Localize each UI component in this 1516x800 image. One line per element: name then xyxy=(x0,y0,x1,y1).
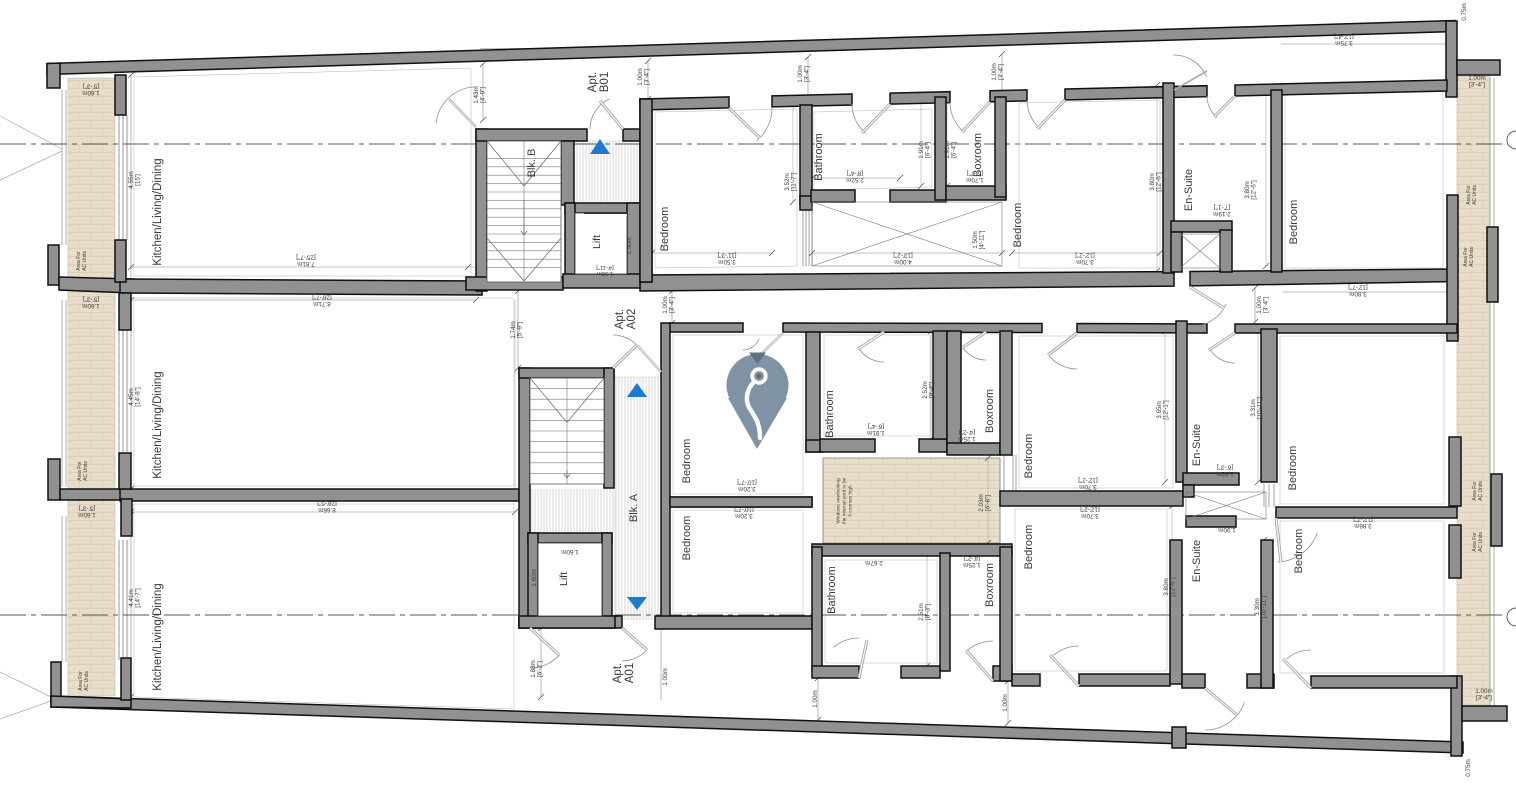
svg-text:3.30m[10'-11"]: 3.30m[10'-11"] xyxy=(1254,595,1268,618)
svg-text:2.03m[6'-8"]: 2.03m[6'-8"] xyxy=(978,494,992,512)
svg-text:3.80m[12'-6"]: 3.80m[12'-6"] xyxy=(1244,180,1258,200)
svg-text:1.70m[5'-7"]: 1.70m[5'-7"] xyxy=(966,170,984,184)
svg-text:2.19m[7'-1"]: 2.19m[7'-1"] xyxy=(1213,204,1231,218)
svg-text:En-Suite: En-Suite xyxy=(1191,424,1203,466)
svg-text:2.52m[8'-4"]: 2.52m[8'-4"] xyxy=(922,381,936,399)
svg-text:Bedroom: Bedroom xyxy=(1288,200,1300,245)
svg-text:Kitchen/Living/Dining: Kitchen/Living/Dining xyxy=(152,583,164,690)
svg-text:2.51m[8'-3"]: 2.51m[8'-3"] xyxy=(918,603,932,621)
svg-text:1.60m[5'-3"]: 1.60m[5'-3"] xyxy=(78,505,96,519)
svg-text:1.00m[3'-4"]: 1.00m[3'-4"] xyxy=(637,68,651,86)
svg-text:Boxroom: Boxroom xyxy=(984,563,996,607)
svg-text:1.60m[5'-3"]: 1.60m[5'-3"] xyxy=(82,83,100,97)
svg-text:En-Suite: En-Suite xyxy=(1191,540,1203,582)
svg-text:1.74m[5'-9"]: 1.74m[5'-9"] xyxy=(510,321,524,339)
svg-text:1.92m[6'-3"]: 1.92m[6'-3"] xyxy=(1216,464,1234,478)
svg-text:Lift: Lift xyxy=(558,572,570,586)
svg-text:3.80m[12'-6"]: 3.80m[12'-6"] xyxy=(1149,172,1163,192)
svg-text:1.00m[3'-4"]: 1.00m[3'-4"] xyxy=(797,65,811,83)
svg-text:Kitchen/Living/Dining: Kitchen/Living/Dining xyxy=(152,158,164,265)
svg-text:3.86m[12'-7"]: 3.86m[12'-7"] xyxy=(1353,516,1373,530)
svg-text:Bedroom: Bedroom xyxy=(1023,434,1035,479)
svg-text:Area ForAC Units: Area ForAC Units xyxy=(1463,247,1475,267)
svg-text:1.60m: 1.60m xyxy=(531,569,538,587)
svg-text:Area ForAC Units: Area ForAC Units xyxy=(1472,481,1484,501)
svg-text:1.60m[5'-3"]: 1.60m[5'-3"] xyxy=(82,296,100,310)
svg-text:Bedroom: Bedroom xyxy=(659,207,671,252)
svg-text:0.75m: 0.75m xyxy=(1461,3,1468,21)
svg-text:3.80m[12'-6"]: 3.80m[12'-6"] xyxy=(1163,577,1177,597)
svg-text:Blk. B: Blk. B xyxy=(526,149,538,178)
svg-text:3.75m[12'-4"]: 3.75m[12'-4"] xyxy=(1334,33,1354,47)
svg-text:2.67m: 2.67m xyxy=(865,559,883,566)
svg-text:4.41m[14'-7"]: 4.41m[14'-7"] xyxy=(128,588,142,608)
svg-text:1.91m[6'-4"]: 1.91m[6'-4"] xyxy=(867,423,885,437)
svg-text:1.50m[4'-11"]: 1.50m[4'-11"] xyxy=(596,264,614,276)
svg-text:1.00m: 1.00m xyxy=(812,690,819,708)
svg-text:3.70m[12'-2"]: 3.70m[12'-2"] xyxy=(1078,477,1098,491)
svg-text:Blk. A: Blk. A xyxy=(628,493,640,522)
svg-text:Area ForAC Units: Area ForAC Units xyxy=(1472,532,1484,552)
svg-text:1.00m: 1.00m xyxy=(1002,694,1009,712)
svg-text:1.00m[3'-4"]: 1.00m[3'-4"] xyxy=(1475,688,1493,702)
svg-text:Boxroom: Boxroom xyxy=(984,389,996,433)
svg-text:Lift: Lift xyxy=(591,235,603,249)
svg-text:1.91m[6'-4"]: 1.91m[6'-4"] xyxy=(918,141,932,159)
svg-text:4.00m[13'-2"]: 4.00m[13'-2"] xyxy=(893,252,913,266)
svg-text:Apt.A02: Apt.A02 xyxy=(614,309,638,329)
svg-text:1.00m[3'-4"]: 1.00m[3'-4"] xyxy=(1468,75,1486,89)
svg-text:1.00m[3'-4"]: 1.00m[3'-4"] xyxy=(662,296,676,314)
svg-text:Bedroom: Bedroom xyxy=(681,516,693,561)
svg-text:3.31m[10'-11"]: 3.31m[10'-11"] xyxy=(1250,396,1264,419)
svg-text:3.20m[10'-7"]: 3.20m[10'-7"] xyxy=(737,479,757,493)
svg-text:Bathroom: Bathroom xyxy=(824,390,836,438)
svg-text:Bedroom: Bedroom xyxy=(1293,529,1305,574)
svg-text:8.66m[28'-5"]: 8.66m[28'-5"] xyxy=(317,500,337,514)
svg-text:Area ForAC Units: Area ForAC Units xyxy=(77,461,89,481)
svg-text:3.80m[12'-7"]: 3.80m[12'-7"] xyxy=(1348,284,1368,298)
svg-text:3.50m[11'-3"]: 3.50m[11'-3"] xyxy=(717,252,736,266)
svg-text:Bedroom: Bedroom xyxy=(1012,203,1024,248)
svg-text:Kitchen/Living/Dining: Kitchen/Living/Dining xyxy=(152,371,164,478)
svg-text:1.88m[6'-2"]: 1.88m[6'-2"] xyxy=(530,660,544,678)
svg-text:Area ForAC Units: Area ForAC Units xyxy=(78,671,90,691)
svg-text:Bathroom: Bathroom xyxy=(813,133,825,181)
svg-text:Apt.A01: Apt.A01 xyxy=(612,663,636,683)
svg-text:2.52m[8'-4"]: 2.52m[8'-4"] xyxy=(846,170,864,184)
svg-text:Area ForAC Units: Area ForAC Units xyxy=(76,251,88,271)
svg-text:Apt.B01: Apt.B01 xyxy=(587,72,611,92)
svg-text:1.43m[4'-9"]: 1.43m[4'-9"] xyxy=(473,86,487,104)
svg-text:0.75m: 0.75m xyxy=(1465,759,1472,777)
svg-text:1.60m: 1.60m xyxy=(561,548,579,555)
svg-text:1.00m: 1.00m xyxy=(662,668,669,686)
svg-text:3.70m[12'-2"]: 3.70m[12'-2"] xyxy=(1075,252,1095,266)
svg-text:Bedroom: Bedroom xyxy=(1287,446,1299,491)
svg-text:Area ForAC Units: Area ForAC Units xyxy=(1466,185,1478,205)
svg-text:Bedroom: Bedroom xyxy=(1023,525,1035,570)
svg-text:3.52m[11'-7"]: 3.52m[11'-7"] xyxy=(784,172,798,191)
svg-text:3.65m[12'-1"]: 3.65m[12'-1"] xyxy=(1156,400,1170,420)
svg-text:7.81m[25'-7"]: 7.81m[25'-7"] xyxy=(296,254,316,268)
svg-text:3.20m[10'-7"]: 3.20m[10'-7"] xyxy=(734,506,754,520)
svg-text:1.25m[4'-2"]: 1.25m[4'-2"] xyxy=(963,555,981,569)
svg-text:1.50m[4'-11"]: 1.50m[4'-11"] xyxy=(972,230,986,249)
svg-text:Bedroom: Bedroom xyxy=(681,439,693,484)
svg-text:1.91m[6'-4"]: 1.91m[6'-4"] xyxy=(944,141,958,159)
svg-text:1.50m: 1.50m xyxy=(626,237,633,255)
svg-text:En-Suite: En-Suite xyxy=(1183,169,1195,211)
svg-text:Bathroom: Bathroom xyxy=(826,566,838,614)
svg-text:1.00m[3'-4"]: 1.00m[3'-4"] xyxy=(991,63,1005,81)
svg-text:1.00m[3'-4"]: 1.00m[3'-4"] xyxy=(1256,296,1270,314)
svg-text:1.90m: 1.90m xyxy=(1218,526,1236,533)
svg-text:8.71m[28'-7"]: 8.71m[28'-7"] xyxy=(312,294,332,308)
svg-text:4.45m[14'-8"]: 4.45m[14'-8"] xyxy=(128,387,142,407)
svg-text:1.25m[4'-2"]: 1.25m[4'-2"] xyxy=(958,429,976,443)
svg-text:3.70m[12'-2"]: 3.70m[12'-2"] xyxy=(1080,506,1100,520)
